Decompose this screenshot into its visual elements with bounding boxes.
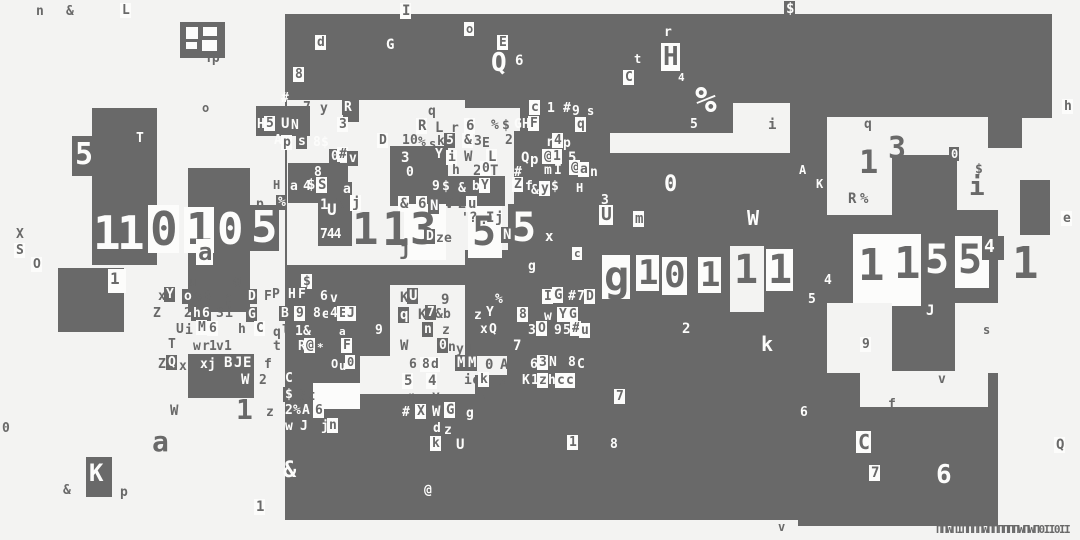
glyph: 1 [859, 146, 877, 178]
glyph: 1 [209, 340, 216, 353]
glyph: s [296, 134, 307, 149]
glyph: 0 [485, 358, 492, 372]
glyph: 7 [614, 389, 625, 404]
glyph: i [969, 174, 984, 200]
glyph: X [336, 198, 343, 212]
glyph: G [386, 38, 393, 52]
glyph: V [445, 197, 452, 211]
glyph: x [200, 358, 207, 371]
glyph: $ [784, 1, 795, 17]
glyph: 6 [464, 118, 475, 134]
glyph: 9 [441, 293, 448, 307]
glyph: p [281, 135, 292, 150]
glyph: 5 [444, 133, 455, 148]
glyph: X [415, 404, 426, 419]
glyph: B [224, 356, 231, 370]
glyph: Q [491, 50, 506, 76]
mosaic-block [998, 118, 1022, 148]
glyph: W [747, 208, 758, 228]
glyph: C [623, 70, 634, 85]
glyph: 0 [406, 166, 413, 179]
glyph: v [778, 521, 784, 533]
glyph: G [514, 118, 521, 131]
glyph: 0 [949, 147, 959, 161]
glyph: U [176, 323, 183, 336]
glyph: n [327, 418, 338, 433]
glyph: s [587, 105, 593, 117]
glyph: d [429, 357, 440, 372]
glyph: 1 [567, 435, 578, 450]
glyph: 4 [340, 391, 347, 404]
glyph: $ [283, 387, 294, 402]
glyph: u [579, 323, 590, 338]
glyph: o [202, 102, 208, 114]
glyph: K [816, 178, 822, 190]
glyph: 1 [117, 210, 144, 256]
glyph: 1 [547, 102, 554, 115]
glyph: 744 [320, 228, 340, 241]
glyph: U [407, 288, 418, 304]
glyph: G [567, 307, 578, 322]
glyph: z [266, 406, 273, 419]
glyph: H [576, 182, 582, 194]
glyph: R [848, 192, 855, 206]
glyph: L [120, 3, 131, 18]
glyph: Q [166, 355, 177, 370]
glyph: U [456, 438, 463, 452]
glyph: T [168, 338, 175, 351]
glyph: Q [521, 151, 528, 165]
glyph: 0 [664, 174, 676, 196]
glyph: N [501, 227, 512, 243]
glyph: D [377, 133, 388, 148]
glyph: 5 [402, 373, 413, 389]
glyph: u [464, 341, 471, 354]
glyph: 1 [110, 271, 119, 287]
glyph: e [444, 232, 451, 245]
glyph: 2 [184, 307, 191, 320]
glyph: q [864, 118, 871, 131]
glyph: 1 [352, 208, 378, 252]
glyph: # [568, 290, 575, 303]
glyph: B [279, 306, 290, 321]
glyph: D [246, 289, 257, 304]
glyph: Z [158, 358, 165, 371]
mosaic-block [202, 40, 217, 51]
glyph: & [458, 182, 465, 195]
glyph: p [224, 292, 231, 305]
glyph: % [293, 404, 300, 417]
glyph: F [296, 287, 307, 302]
glyph: A [302, 404, 309, 417]
glyph: W [170, 404, 177, 418]
mosaic-block [957, 148, 1022, 210]
glyph: S [316, 177, 327, 193]
glyph: n [422, 322, 433, 337]
glyph: k [478, 372, 489, 387]
glyph: & [303, 325, 310, 338]
glyph: 0 [662, 257, 687, 295]
glyph: % [495, 293, 502, 306]
glyph: Y [164, 287, 175, 302]
glyph: O [31, 257, 42, 272]
glyph: E [243, 356, 250, 370]
glyph: 3 [498, 375, 505, 388]
glyph: D [424, 229, 435, 244]
glyph: c [564, 373, 575, 388]
glyph: & [283, 460, 295, 482]
glyph: 6 [313, 403, 324, 418]
glyph: 9 [373, 323, 384, 338]
mosaic-block [733, 103, 790, 153]
glyph: P [272, 288, 279, 301]
glyph: S [298, 389, 305, 403]
glyph: a [578, 162, 589, 177]
glyph: R [342, 100, 353, 115]
glyph: H [273, 179, 279, 191]
glyph: W [464, 150, 471, 164]
glyph: j [208, 358, 215, 371]
glyph: fp [205, 52, 219, 65]
glyph: 6 [207, 321, 218, 336]
glyph: 3 [216, 307, 223, 320]
glyph: 5 [958, 240, 981, 280]
glyph: c [529, 100, 540, 115]
glyph: & [531, 184, 538, 197]
glyph: u [189, 276, 196, 289]
glyph: # [402, 406, 409, 419]
mosaic-block [860, 371, 988, 407]
glyph: q [428, 105, 435, 118]
glyph: a [196, 239, 213, 265]
glyph: i [768, 118, 775, 132]
glyph: G [552, 287, 563, 303]
glyph: t [307, 389, 314, 403]
mosaic-block [1020, 180, 1050, 235]
glyph: * [317, 342, 323, 353]
glyph: 1 [551, 149, 562, 164]
glyph: o [464, 22, 474, 36]
glyph: 7 [869, 465, 880, 481]
glyph: 1 [402, 134, 409, 147]
glyph: Q [1054, 437, 1065, 453]
glyph: 6 [515, 54, 522, 68]
glyph: 1 [636, 255, 659, 291]
glyph: m [633, 211, 644, 227]
glyph: x [482, 392, 489, 405]
glyph: z [537, 373, 548, 388]
glyph: A [274, 134, 281, 147]
glyph: 5 [472, 212, 495, 252]
mosaic-block [186, 27, 198, 39]
glyph: s [983, 324, 989, 336]
glyph: 8 [517, 307, 528, 322]
glyph: 4 [552, 133, 563, 148]
glyph: 1 [766, 249, 793, 291]
glyph: 6 [530, 358, 537, 371]
glyph: g [466, 407, 473, 420]
glyph: B [203, 290, 210, 303]
glyph: w [193, 340, 200, 353]
bottom-glyph-strip: ΠΠWΠIΠΠΠΠWΠΠΠΠΠΠWΠWΠ0II0II [936, 524, 1069, 535]
glyph: z [442, 324, 449, 337]
glyph: v [938, 373, 945, 386]
glyph: 1 [224, 340, 231, 353]
mosaic-block [610, 133, 736, 153]
glyph: 2 [505, 134, 512, 147]
glyph: X [16, 228, 23, 241]
glyph: 4 [824, 274, 831, 287]
glyph: Z [153, 307, 160, 320]
glyph: 1 [894, 242, 920, 286]
glyph: G [444, 402, 455, 418]
glyph: k [430, 436, 441, 451]
glyph: r [202, 340, 209, 353]
glyph: 2 [682, 322, 689, 336]
glyph: @ [233, 275, 240, 288]
glyph: q [398, 307, 409, 323]
glyph: F [341, 338, 352, 353]
glyph: & [66, 5, 73, 18]
glyph: 5 [512, 208, 535, 248]
glyph: $ [551, 180, 558, 193]
glyph: ' [461, 212, 468, 225]
glyph: Z [512, 177, 523, 192]
glyph: 3 [888, 134, 905, 164]
glyph: 8 [610, 438, 617, 451]
glyph: % [695, 83, 716, 119]
glyph: Y [484, 305, 495, 320]
glyph: # [563, 102, 570, 115]
glyph: Y [479, 178, 490, 193]
glyph: 9 [860, 337, 871, 352]
glyph: 5 [925, 240, 948, 280]
glyph: 3 [537, 355, 548, 370]
glyph: n [448, 341, 455, 354]
glyph: U [599, 205, 613, 225]
glyph: 1 [93, 210, 120, 256]
glitch-canvas: n&LI$fpo5TdGoEQ68#rtH4C%5iheq310$iAKR%W7… [0, 0, 1080, 540]
glyph: c [572, 247, 582, 260]
glyph: 8 [568, 356, 575, 369]
glyph: Y [435, 148, 442, 161]
glyph: x [545, 230, 552, 244]
glyph: % [194, 291, 201, 304]
glyph: C [254, 321, 265, 336]
glyph: o [182, 289, 193, 304]
glyph: 8 [313, 136, 320, 149]
glyph: $ [321, 136, 328, 149]
glyph: % [418, 136, 425, 149]
glyph: W [432, 405, 439, 419]
mosaic-block [203, 27, 217, 36]
glyph: r [664, 26, 671, 39]
glyph: i [185, 324, 192, 337]
glyph: h [1062, 99, 1073, 114]
glyph: M [466, 355, 477, 371]
glyph: O [331, 358, 337, 370]
glyph: a [152, 428, 168, 456]
glyph: y [320, 102, 327, 115]
glyph: d [315, 35, 326, 50]
glyph: T [490, 164, 497, 178]
glyph: 4 [426, 373, 437, 389]
glyph: 5 [75, 140, 92, 170]
glyph: J [300, 420, 307, 433]
glyph: 3 [337, 117, 348, 132]
glyph: a [290, 180, 297, 193]
glyph: z [332, 391, 339, 404]
glyph: 0 [2, 422, 9, 435]
glyph: D [584, 289, 595, 304]
glyph: 7 [513, 339, 520, 353]
glyph: & [63, 484, 70, 497]
glyph: & [435, 308, 442, 321]
glyph: b [443, 308, 450, 321]
mosaic-block [186, 42, 197, 49]
glyph: W [241, 373, 248, 387]
glyph: 2 [458, 197, 465, 211]
glyph: C [577, 358, 584, 371]
glyph: $ [502, 119, 509, 132]
glyph: 0 [345, 355, 355, 369]
glyph: p [530, 153, 537, 167]
glyph: C [285, 372, 292, 385]
glyph: q [273, 326, 280, 339]
glyph: n [590, 166, 597, 179]
glyph: z [444, 424, 451, 437]
glyph: $ [440, 179, 451, 194]
glyph: C [856, 431, 871, 453]
glyph: 2 [285, 404, 292, 417]
glyph: 1 [295, 325, 302, 338]
glyph: U [281, 117, 288, 131]
glyph: 9 [554, 324, 561, 337]
glyph: v [347, 151, 358, 166]
glyph: 0 [217, 208, 243, 252]
glyph: v [216, 340, 223, 353]
glyph: 6 [409, 358, 416, 371]
glyph: R [416, 118, 427, 134]
glyph: O [536, 321, 547, 336]
glyph: 7 [303, 101, 310, 114]
glyph: K [89, 461, 102, 485]
glyph: 5 [808, 293, 815, 306]
glyph: % [860, 192, 867, 206]
glyph: w [285, 420, 292, 433]
glyph: M [455, 355, 466, 371]
glyph: h [452, 164, 459, 177]
glyph: A [799, 164, 805, 176]
glyph: h [238, 323, 245, 336]
glyph: F [264, 290, 271, 303]
glyph: f [888, 398, 895, 411]
glyph: 9 [294, 306, 305, 321]
glyph: q [407, 391, 414, 404]
glyph: y [539, 181, 550, 196]
glyph: y [432, 390, 439, 403]
glyph: g [528, 260, 535, 273]
glyph: k [761, 334, 772, 354]
glyph: 0 [148, 205, 179, 253]
glyph: 0 [437, 338, 448, 353]
glyph: 4 [303, 180, 310, 193]
glyph: Q [487, 322, 498, 337]
glyph: q [575, 117, 586, 132]
glyph: 8 [293, 67, 304, 82]
glyph: 1 [858, 244, 884, 288]
glyph: I [554, 164, 561, 177]
glyph: v [328, 291, 339, 306]
glyph: & [462, 133, 473, 148]
glyph: i [225, 307, 232, 320]
glyph: U [327, 202, 336, 218]
glyph: 4 [984, 238, 994, 256]
glyph: I [400, 3, 411, 19]
glyph: p [563, 137, 570, 150]
glyph: z [474, 309, 481, 322]
glyph: S [14, 243, 25, 258]
glyph: 1 [734, 250, 757, 290]
glyph: 5 [249, 205, 279, 251]
glyph: N [291, 119, 298, 132]
glyph: % [491, 119, 498, 132]
glyph: 1 [698, 257, 721, 293]
glyph: @ [304, 338, 315, 353]
glyph: h [548, 374, 555, 387]
glyph: m [544, 164, 551, 177]
glyph: j [495, 211, 502, 225]
glyph: d [433, 422, 440, 435]
glyph: 6 [800, 406, 807, 419]
glyph: 1 [236, 396, 252, 424]
glyph: L [435, 121, 442, 135]
glyph: 3 [528, 324, 535, 337]
glyph: b [472, 180, 479, 193]
glyph: H [661, 43, 680, 71]
glyph: 7 [577, 290, 584, 303]
glyph: J [926, 304, 933, 318]
glyph: 1 [1012, 242, 1038, 286]
glyph: t [634, 53, 640, 65]
glyph: 2 [259, 374, 266, 387]
glyph: x [179, 360, 186, 373]
glyph: a [339, 326, 345, 337]
glyph: 3 [474, 135, 481, 148]
glyph: 3 [401, 151, 408, 165]
glyph: 0 [410, 134, 417, 147]
glyph: J [234, 356, 241, 370]
glyph: J [345, 306, 356, 321]
glyph: T [136, 132, 143, 145]
glyph: l [282, 324, 289, 337]
glyph: z [436, 232, 443, 245]
glyph: @ [424, 484, 431, 497]
glyph: j [399, 238, 410, 258]
glyph: 5 [264, 116, 275, 131]
glyph: # [281, 92, 288, 105]
glyph: u [324, 391, 331, 404]
glyph: n [36, 5, 43, 18]
glyph: M [196, 320, 207, 335]
mosaic-block [955, 303, 1020, 373]
glyph: e [1061, 211, 1072, 226]
glyph: G [246, 307, 257, 322]
glyph: A [500, 358, 507, 372]
glyph: t [273, 340, 280, 353]
glyph: i [464, 374, 471, 387]
glyph: 5 [688, 117, 699, 132]
